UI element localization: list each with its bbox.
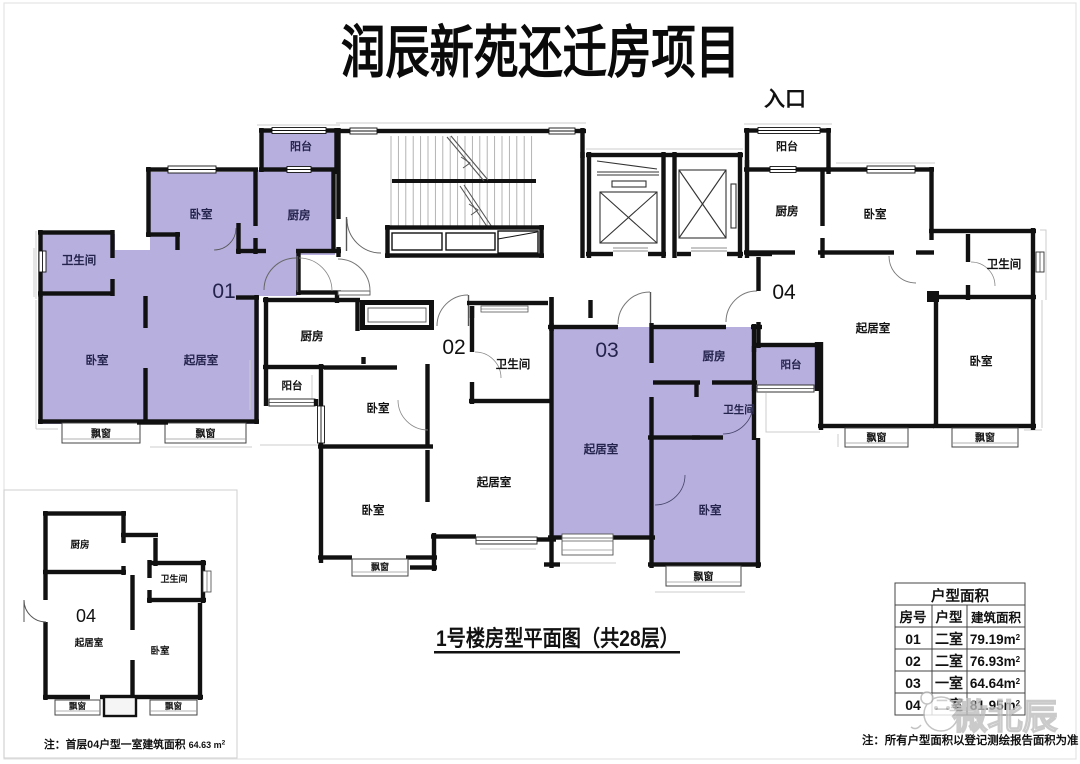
svg-text:卫生间: 卫生间 bbox=[723, 403, 755, 416]
svg-text:二室: 二室 bbox=[935, 631, 963, 647]
svg-text:卧室: 卧室 bbox=[150, 645, 170, 657]
svg-text:阳台: 阳台 bbox=[781, 358, 802, 371]
svg-text:起居室: 起居室 bbox=[476, 475, 512, 489]
svg-text:卧室: 卧室 bbox=[190, 207, 213, 221]
svg-text:卧室: 卧室 bbox=[367, 401, 390, 415]
svg-text:卧室: 卧室 bbox=[864, 207, 887, 221]
svg-text:03: 03 bbox=[595, 339, 618, 362]
svg-text:飘窗: 飘窗 bbox=[165, 701, 183, 711]
svg-text:飘窗: 飘窗 bbox=[196, 427, 216, 440]
svg-text:房号: 房号 bbox=[900, 609, 927, 625]
svg-text:阳台: 阳台 bbox=[776, 139, 798, 153]
svg-text:建筑面积: 建筑面积 bbox=[971, 610, 1022, 625]
svg-text:厨房: 厨房 bbox=[70, 539, 89, 551]
svg-text:卫生间: 卫生间 bbox=[62, 253, 97, 267]
svg-text:03: 03 bbox=[905, 675, 921, 691]
svg-text:卫生间: 卫生间 bbox=[160, 573, 187, 584]
svg-text:厨房: 厨房 bbox=[301, 329, 324, 343]
svg-text:微北辰: 微北辰 bbox=[951, 698, 1057, 737]
svg-text:入口: 入口 bbox=[764, 88, 806, 111]
svg-text:一室: 一室 bbox=[935, 675, 963, 691]
svg-text:1号楼房型平面图（共28层）: 1号楼房型平面图（共28层） bbox=[436, 626, 679, 651]
svg-text:起居室: 起居室 bbox=[855, 321, 891, 335]
svg-text:卧室: 卧室 bbox=[362, 503, 385, 517]
svg-text:飘窗: 飘窗 bbox=[867, 431, 887, 444]
svg-text:厨房: 厨房 bbox=[703, 349, 726, 363]
svg-text:卧室: 卧室 bbox=[86, 353, 109, 367]
svg-text:飘窗: 飘窗 bbox=[69, 701, 87, 711]
svg-text:厨房: 厨房 bbox=[776, 204, 799, 218]
svg-text:卧室: 卧室 bbox=[699, 503, 722, 517]
svg-text:飘窗: 飘窗 bbox=[91, 427, 111, 440]
svg-text:注：首层04户型一室建筑面积 64.63 m2: 注：首层04户型一室建筑面积 64.63 m2 bbox=[44, 737, 226, 751]
svg-text:01: 01 bbox=[212, 280, 235, 303]
svg-text:飘窗: 飘窗 bbox=[694, 570, 714, 583]
svg-text:04: 04 bbox=[905, 697, 921, 713]
svg-text:起居室: 起居室 bbox=[583, 442, 619, 456]
svg-text:02: 02 bbox=[442, 336, 465, 359]
svg-text:户型: 户型 bbox=[936, 609, 964, 625]
svg-text:飘窗: 飘窗 bbox=[371, 561, 389, 572]
svg-text:04: 04 bbox=[76, 606, 96, 626]
svg-text:阳台: 阳台 bbox=[282, 379, 303, 392]
svg-text:79.19m2: 79.19m2 bbox=[970, 632, 1021, 647]
svg-text:户型面积: 户型面积 bbox=[931, 587, 989, 605]
svg-text:卫生间: 卫生间 bbox=[987, 257, 1022, 271]
svg-text:76.93m2: 76.93m2 bbox=[970, 654, 1021, 669]
svg-text:02: 02 bbox=[905, 653, 921, 669]
svg-text:厨房: 厨房 bbox=[288, 208, 311, 222]
svg-text:阳台: 阳台 bbox=[290, 139, 312, 153]
svg-text:卧室: 卧室 bbox=[970, 354, 993, 368]
svg-text:飘窗: 飘窗 bbox=[975, 431, 995, 444]
svg-text:起居室: 起居室 bbox=[74, 637, 104, 649]
svg-text:01: 01 bbox=[905, 631, 921, 647]
svg-text:64.64m2: 64.64m2 bbox=[970, 676, 1021, 691]
svg-text:卫生间: 卫生间 bbox=[496, 357, 531, 371]
svg-text:04: 04 bbox=[772, 281, 796, 304]
svg-text:起居室: 起居室 bbox=[183, 353, 219, 367]
svg-text:二室: 二室 bbox=[935, 653, 963, 669]
svg-text:润辰新苑还迁房项目: 润辰新苑还迁房项目 bbox=[341, 21, 740, 85]
